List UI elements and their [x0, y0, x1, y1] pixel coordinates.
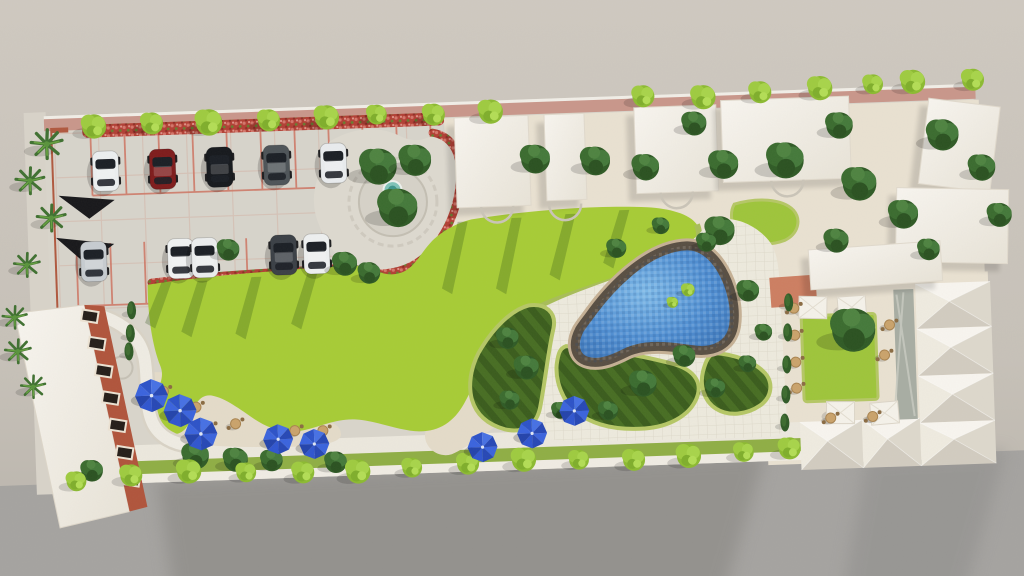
- grain-overlay: [0, 0, 1024, 576]
- site-plan-rendering: [0, 0, 1024, 576]
- rendering-canvas: [0, 0, 1024, 576]
